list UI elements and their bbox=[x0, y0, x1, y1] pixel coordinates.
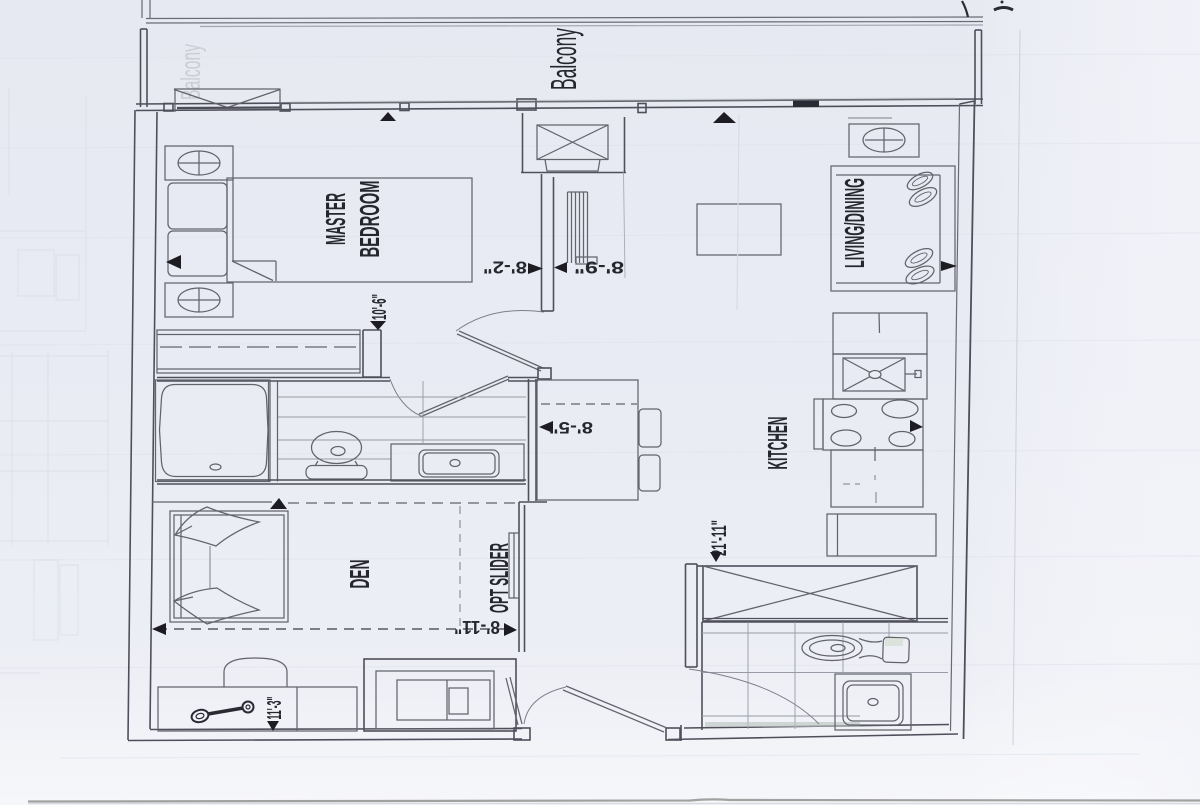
svg-text:8'-2": 8'-2" bbox=[483, 258, 527, 278]
svg-text:8'-5": 8'-5" bbox=[549, 418, 593, 437]
svg-text:KITCHEN: KITCHEN bbox=[762, 417, 793, 470]
svg-text:BEDROOM: BEDROOM bbox=[354, 181, 385, 258]
svg-text:8'-9": 8'-9" bbox=[574, 258, 624, 278]
svg-text:MASTER: MASTER bbox=[320, 193, 351, 245]
svg-text:DEN: DEN bbox=[344, 560, 375, 589]
svg-text:10'-6": 10'-6" bbox=[369, 294, 391, 320]
svg-text:Balcony: Balcony bbox=[543, 28, 584, 90]
svg-text:8'-11": 8'-11" bbox=[454, 617, 500, 637]
svg-text:11'-3": 11'-3" bbox=[264, 697, 286, 720]
svg-text:21'-11": 21'-11" bbox=[708, 520, 731, 556]
svg-text:LIVING/DINING: LIVING/DINING bbox=[839, 178, 870, 268]
svg-text:OPT SLIDER: OPT SLIDER bbox=[484, 543, 514, 613]
